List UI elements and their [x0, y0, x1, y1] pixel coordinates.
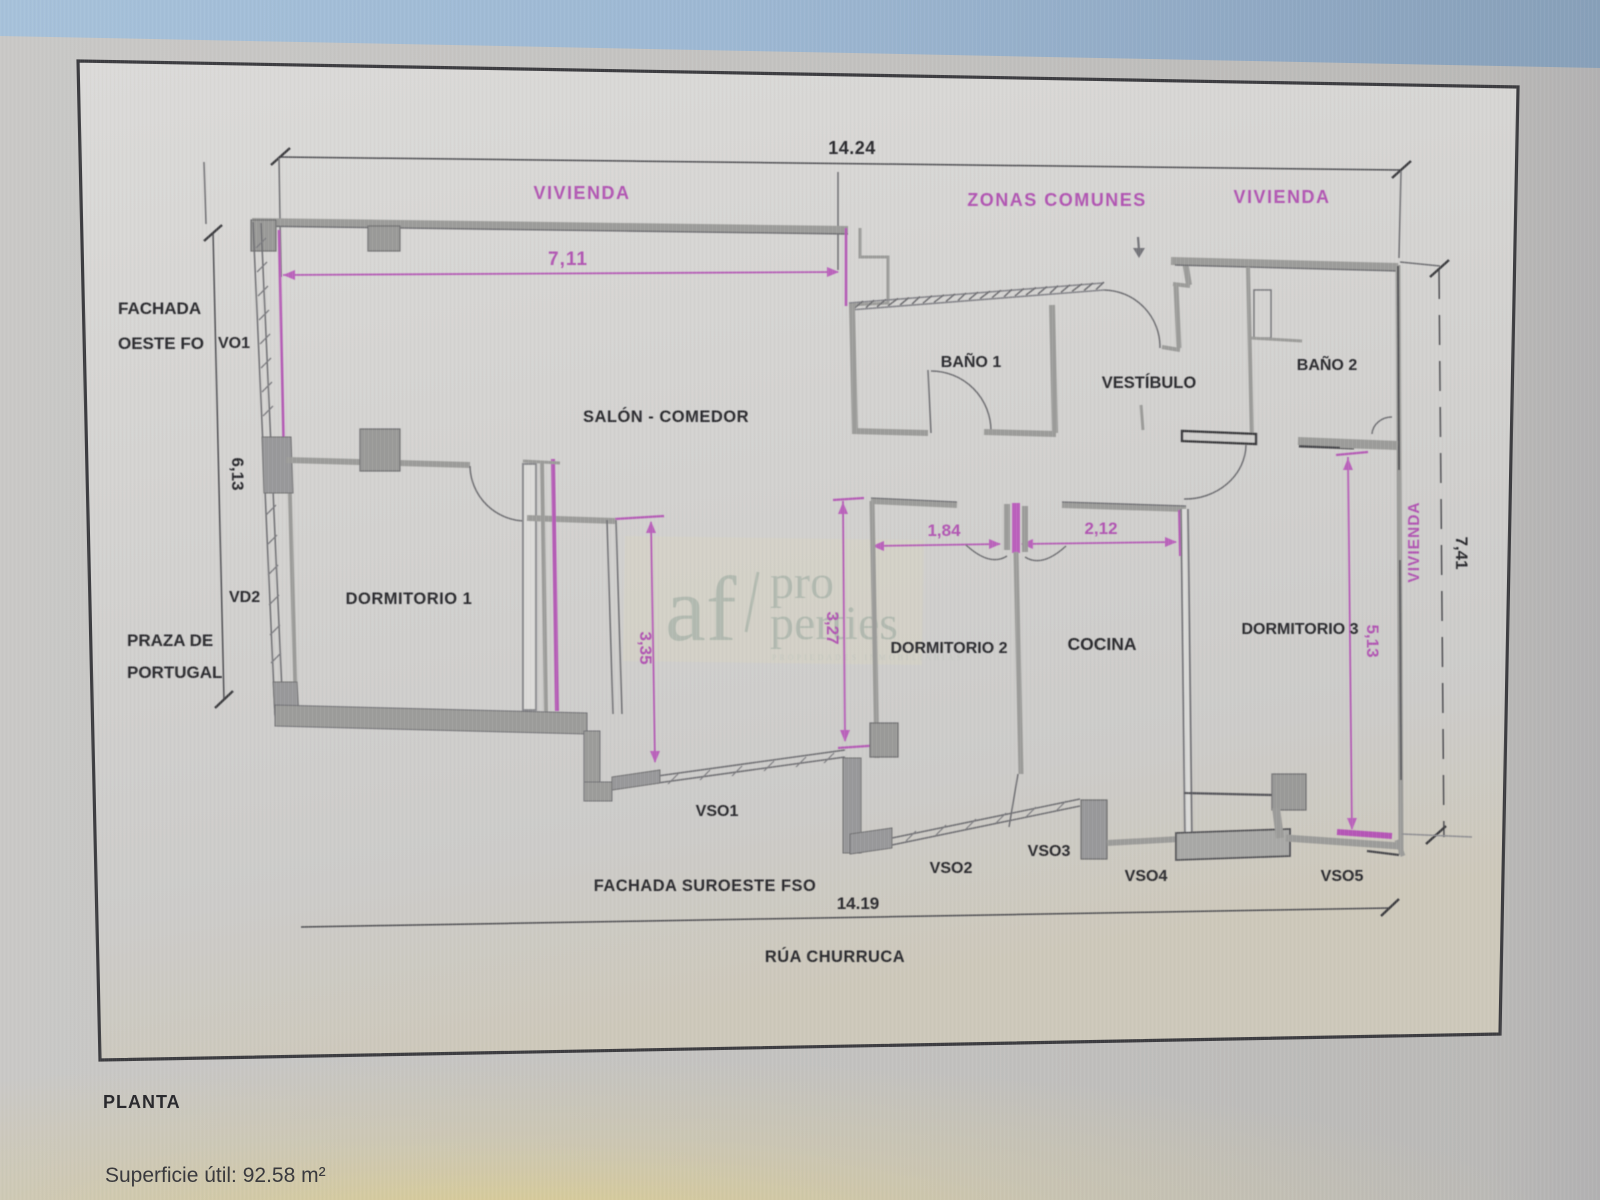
- svg-text:Superficie útil: 92.58 m²: Superficie útil: 92.58 m²: [105, 1164, 326, 1187]
- svg-text:PLANTA: PLANTA: [103, 1092, 181, 1112]
